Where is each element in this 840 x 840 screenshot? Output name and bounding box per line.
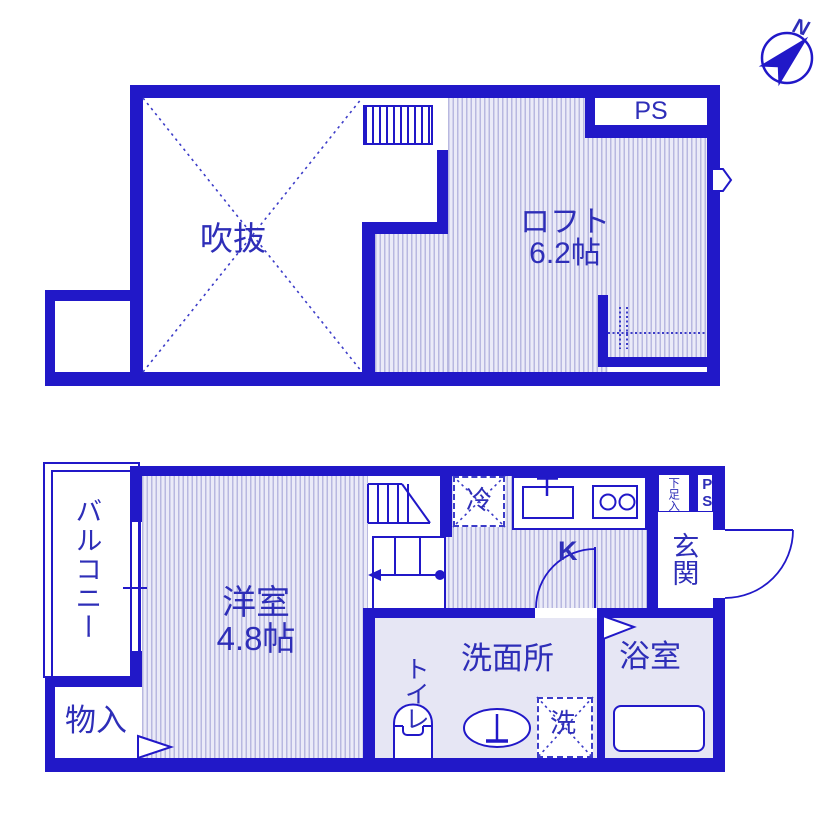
floorplan-canvas: 吹抜 ロフト 6.2帖 PS N <box>0 0 840 840</box>
storage-door-marker <box>138 736 171 758</box>
balcony-label: バルコニー <box>72 497 100 659</box>
entrance-door-swing <box>725 530 793 598</box>
bathroom-door-marker <box>603 616 634 639</box>
washroom-label: 洗面所 <box>461 643 554 676</box>
stove-icon <box>593 486 637 518</box>
washbasin-icon <box>464 709 530 747</box>
storage-label: 物入 <box>58 705 134 738</box>
shoe-cabinet-label: 下足入 <box>667 477 679 511</box>
bathroom-label: 浴室 <box>619 641 681 674</box>
western-room-label: 洋室 <box>206 586 306 622</box>
washer-label: 洗 <box>550 710 576 737</box>
refrigerator-label: 冷 <box>466 487 492 514</box>
lower-ps-label: PS <box>699 476 715 512</box>
kitchen-sink-icon <box>523 470 573 518</box>
stairs-upper-run <box>368 484 430 523</box>
western-room-size-label: 4.8帖 <box>206 622 306 657</box>
stairs-lower-run <box>368 537 445 608</box>
entrance-label: 玄関 <box>669 532 697 592</box>
kitchen-label: K <box>558 537 578 565</box>
toilet-label: トイレ <box>402 656 428 750</box>
